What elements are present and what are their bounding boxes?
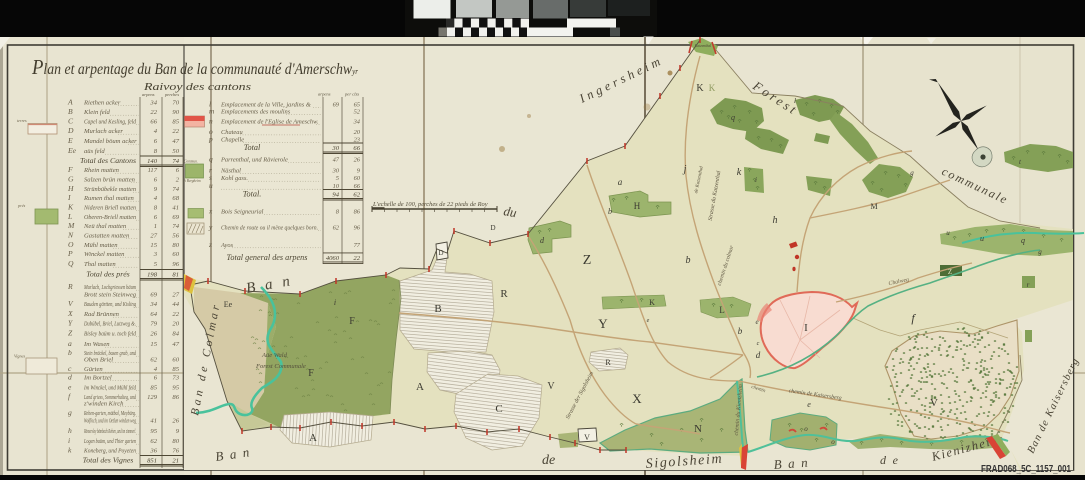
svg-text:Aüe Wald: Aüe Wald <box>261 352 288 359</box>
svg-text:60: 60 <box>354 175 361 182</box>
svg-text:b: b <box>68 348 72 357</box>
svg-text:77: 77 <box>354 242 361 249</box>
svg-text:y: y <box>208 223 213 232</box>
svg-text:22: 22 <box>150 109 157 116</box>
svg-text:Nästhal: Nästhal <box>220 168 241 175</box>
svg-text:z: z <box>208 240 212 249</box>
svg-text:80: 80 <box>172 242 179 249</box>
svg-text:851: 851 <box>147 458 157 465</box>
svg-text:terres: terres <box>17 118 27 123</box>
svg-text:3: 3 <box>153 251 158 258</box>
svg-text:41: 41 <box>172 205 179 212</box>
svg-text:K: K <box>649 298 655 307</box>
svg-text:Chemin de route ou il mène que: Chemin de route ou il mène quelques born… <box>221 225 318 232</box>
svg-text:B: B <box>434 303 441 315</box>
svg-text:5: 5 <box>336 175 339 182</box>
svg-text:Total des prés: Total des prés <box>86 270 129 279</box>
svg-text:C: C <box>495 403 502 415</box>
svg-text:62: 62 <box>150 357 157 364</box>
svg-text:Rad Brünnen: Rad Brünnen <box>83 311 120 318</box>
svg-text:86: 86 <box>354 209 361 216</box>
svg-text:Wolfloch, und im Oetlen winden: Wolfloch, und im Oetlen winden weg <box>84 418 136 425</box>
svg-text:60: 60 <box>172 251 179 258</box>
svg-text:FRAD068_5C_1157_001: FRAD068_5C_1157_001 <box>981 463 1071 475</box>
svg-text:Mühl matten: Mühl matten <box>83 242 118 249</box>
svg-text:Z: Z <box>948 268 952 276</box>
svg-text:A: A <box>67 98 73 107</box>
svg-text:62: 62 <box>333 225 340 232</box>
svg-text:G: G <box>68 175 74 184</box>
svg-text:Klein feld: Klein feld <box>83 109 111 116</box>
svg-text:22: 22 <box>172 128 179 135</box>
svg-text:Neü thal matten: Neü thal matten <box>83 223 127 230</box>
svg-text:R: R <box>500 288 508 300</box>
svg-text:26: 26 <box>150 331 157 338</box>
svg-text:V: V <box>930 397 938 409</box>
svg-text:r: r <box>1027 281 1030 289</box>
svg-text:74: 74 <box>172 223 179 230</box>
svg-text:g: g <box>910 169 914 177</box>
svg-text:Dubübel, Briel, Lutzweg &.: Dubübel, Briel, Lutzweg &. <box>83 321 136 328</box>
svg-text:arpens: arpens <box>318 92 331 97</box>
svg-text:D: D <box>490 224 495 232</box>
svg-text:perches: perches <box>164 92 179 97</box>
svg-text:Strünbübekle matten: Strünbübekle matten <box>84 186 137 193</box>
svg-text:74: 74 <box>172 158 179 165</box>
svg-text:85: 85 <box>172 366 179 373</box>
svg-text:O: O <box>68 240 74 249</box>
svg-text:21: 21 <box>172 458 179 465</box>
svg-text:Koneberg, und Poyeten: Koneberg, und Poyeten <box>83 448 136 455</box>
svg-text:R: R <box>67 282 73 291</box>
svg-text:94: 94 <box>332 192 339 199</box>
svg-text:i: i <box>334 298 336 307</box>
svg-text:44: 44 <box>172 301 179 308</box>
svg-text:34: 34 <box>353 118 361 125</box>
svg-text:arpens: arpens <box>142 92 155 97</box>
svg-text:u: u <box>209 181 213 190</box>
svg-text:Thal matten: Thal matten <box>84 261 116 268</box>
svg-text:62: 62 <box>150 438 157 445</box>
svg-text:à Bergheim: à Bergheim <box>184 179 201 183</box>
svg-text:129: 129 <box>147 394 158 401</box>
svg-text:b: b <box>686 255 691 266</box>
svg-text:64: 64 <box>150 311 157 318</box>
svg-text:prés: prés <box>17 203 26 208</box>
svg-text:e: e <box>807 400 811 409</box>
svg-text:34: 34 <box>149 100 157 107</box>
svg-text:69: 69 <box>150 292 157 299</box>
svg-text:Römersley bämbach Reben, und i: Römersley bämbach Reben, und im zimmerl. <box>84 428 137 435</box>
svg-text:Total des Cantons: Total des Cantons <box>80 156 136 165</box>
svg-text:Logen baüm, und Thier garten: Logen baüm, und Thier garten <box>83 438 136 445</box>
svg-text:1: 1 <box>154 223 157 230</box>
svg-text:I: I <box>67 193 71 202</box>
svg-text:Kohl gass.: Kohl gass. <box>220 175 248 182</box>
svg-text:95: 95 <box>150 428 157 435</box>
svg-text:B: B <box>68 107 73 116</box>
svg-text:N: N <box>67 231 74 240</box>
svg-text:x: x <box>208 207 213 216</box>
svg-text:140: 140 <box>147 158 158 165</box>
svg-text:20: 20 <box>172 321 179 328</box>
svg-text:Rhein matten: Rhein matten <box>83 167 120 174</box>
svg-text:Im Bortzel: Im Bortzel <box>83 375 112 382</box>
svg-text:26: 26 <box>354 157 361 164</box>
svg-text:q: q <box>209 155 213 164</box>
svg-text:Ee: Ee <box>224 300 233 309</box>
svg-text:Winckel matten: Winckel matten <box>84 251 125 258</box>
svg-text:K: K <box>696 83 704 94</box>
svg-text:Salzen brün matten: Salzen brün matten <box>84 177 136 184</box>
svg-text:b: b <box>608 207 612 216</box>
svg-text:p: p <box>208 135 213 144</box>
svg-text:Rumen thal matten: Rumen thal matten <box>83 195 135 202</box>
svg-text:D: D <box>67 126 74 135</box>
svg-text:85: 85 <box>150 385 157 392</box>
svg-text:i: i <box>68 436 70 445</box>
svg-text:Commun.: Commun. <box>184 160 198 164</box>
svg-text:P: P <box>67 249 73 258</box>
svg-text:36: 36 <box>149 448 157 455</box>
svg-text:74: 74 <box>172 186 179 193</box>
svg-text:g: g <box>1038 248 1042 256</box>
svg-text:30: 30 <box>331 145 339 152</box>
svg-text:c: c <box>757 341 760 347</box>
svg-text:Bauden gärtten, und Kisling: Bauden gärtten, und Kisling <box>84 301 136 308</box>
svg-text:Brott stein Steinweg: Brott stein Steinweg <box>84 292 137 299</box>
svg-text:aüs feld: aüs feld <box>84 148 105 155</box>
svg-text:Total: Total <box>244 143 261 152</box>
svg-text:Ban: Ban <box>773 455 808 472</box>
svg-text:90: 90 <box>172 109 179 116</box>
svg-text:Parrenthal, und Rävierole: Parrenthal, und Rävierole <box>220 157 288 164</box>
svg-text:K: K <box>709 83 716 93</box>
svg-text:V: V <box>584 433 590 442</box>
svg-text:X: X <box>67 309 73 318</box>
svg-text:Gastatten matten: Gastatten matten <box>84 233 130 240</box>
svg-text:h: h <box>68 426 72 435</box>
svg-text:Forest Communale: Forest Communale <box>255 363 306 370</box>
svg-text:I: I <box>804 322 808 334</box>
svg-text:86: 86 <box>172 394 179 401</box>
svg-text:Y: Y <box>598 316 608 331</box>
svg-text:30: 30 <box>332 168 340 175</box>
svg-text:h: h <box>773 215 778 226</box>
svg-text:62: 62 <box>353 192 360 199</box>
svg-text:52: 52 <box>354 109 361 116</box>
svg-text:73: 73 <box>172 375 179 382</box>
svg-text:u: u <box>980 234 984 243</box>
svg-text:Im Wasen: Im Wasen <box>83 341 110 348</box>
svg-text:H: H <box>634 201 641 211</box>
svg-text:65: 65 <box>354 102 360 109</box>
svg-text:per clzs: per clzs <box>344 92 359 97</box>
svg-text:Emplacements des moulins: Emplacements des moulins <box>220 109 291 116</box>
svg-text:69: 69 <box>333 102 340 109</box>
svg-text:Mandel böum acker: Mandel böum acker <box>83 138 137 145</box>
svg-text:M: M <box>67 221 75 230</box>
svg-text:22: 22 <box>172 311 179 318</box>
svg-text:M: M <box>870 202 877 211</box>
svg-text:A: A <box>416 381 424 393</box>
svg-text:Total.: Total. <box>243 190 262 199</box>
svg-text:q: q <box>731 113 735 122</box>
svg-text:a: a <box>618 177 623 187</box>
svg-text:20: 20 <box>354 129 361 136</box>
svg-text:Vignes: Vignes <box>14 354 25 359</box>
svg-text:41: 41 <box>150 418 157 425</box>
svg-text:96: 96 <box>172 261 179 268</box>
svg-text:L: L <box>67 212 72 221</box>
svg-text:g: g <box>68 408 72 417</box>
svg-text:d: d <box>68 373 72 382</box>
svg-text:q: q <box>1021 236 1025 245</box>
svg-text:Bisley baüm u. toch feld: Bisley baüm u. toch feld <box>84 331 137 338</box>
svg-text:b: b <box>738 326 743 336</box>
svg-text:Chateau: Chateau <box>221 129 243 136</box>
svg-text:F: F <box>67 165 73 174</box>
svg-text:80: 80 <box>172 438 179 445</box>
svg-text:u: u <box>946 229 950 237</box>
svg-text:27: 27 <box>172 292 179 299</box>
svg-text:34: 34 <box>149 301 157 308</box>
svg-text:79: 79 <box>150 321 157 328</box>
svg-text:Nideren Briell matten: Nideren Briell matten <box>83 205 137 212</box>
svg-text:L'echelle de 100, perches de 2: L'echelle de 100, perches de 22 pieds de… <box>372 201 488 208</box>
svg-text:e: e <box>647 318 650 324</box>
svg-text:m: m <box>209 107 215 116</box>
svg-text:o: o <box>831 438 835 446</box>
svg-text:95: 95 <box>172 385 179 392</box>
svg-text:i: i <box>755 176 757 184</box>
svg-text:76: 76 <box>172 448 179 455</box>
svg-text:66: 66 <box>150 119 157 126</box>
svg-text:R: R <box>605 358 611 367</box>
svg-text:26: 26 <box>172 418 179 425</box>
svg-text:117: 117 <box>148 167 158 174</box>
svg-text:50: 50 <box>172 148 179 155</box>
svg-text:Total des Vignes: Total des Vignes <box>83 456 134 465</box>
svg-text:N: N <box>694 423 702 435</box>
svg-text:Z: Z <box>583 253 592 268</box>
svg-text:z'winden Kirch: z'winden Kirch <box>83 401 124 408</box>
svg-text:70: 70 <box>172 100 179 107</box>
svg-text:56: 56 <box>172 233 179 240</box>
svg-text:Emplacement de l'Eglise de Ame: Emplacement de l'Eglise de Ameschw. <box>220 118 319 125</box>
svg-text:84: 84 <box>172 331 179 338</box>
svg-text:X: X <box>632 391 642 406</box>
svg-text:Riethen acker: Riethen acker <box>83 100 121 107</box>
svg-text:de: de <box>542 453 555 468</box>
svg-text:k: k <box>737 167 742 178</box>
svg-text:D: D <box>438 249 443 257</box>
svg-text:85: 85 <box>172 119 179 126</box>
svg-text:Murlach, Lochgriessen bäum: Murlach, Lochgriessen bäum <box>83 284 136 291</box>
svg-text:Emplacement de la Ville, jardi: Emplacement de la Ville, jardins & <box>220 102 311 109</box>
svg-text:47: 47 <box>333 157 340 164</box>
svg-text:Chapelle: Chapelle <box>221 137 244 144</box>
svg-text:81: 81 <box>172 272 179 279</box>
svg-text:15: 15 <box>150 341 157 348</box>
svg-text:27: 27 <box>150 233 157 240</box>
svg-text:198: 198 <box>147 272 158 279</box>
svg-text:68: 68 <box>172 195 179 202</box>
svg-text:Capel und Kesling, feld: Capel und Kesling, feld <box>84 119 137 126</box>
svg-text:V: V <box>547 381 555 392</box>
svg-text:L: L <box>719 305 725 315</box>
svg-text:Reben-garten, mätbal, Meybürg.: Reben-garten, mätbal, Meybürg. <box>83 410 136 417</box>
svg-text:e: e <box>755 318 758 326</box>
svg-text:Raivoy des cantons: Raivoy des cantons <box>143 81 251 93</box>
svg-text:n: n <box>209 116 213 125</box>
svg-text:Im Winckel, und Mühl feld: Im Winckel, und Mühl feld <box>83 385 136 392</box>
svg-text:96: 96 <box>354 225 361 232</box>
svg-text:d: d <box>756 350 761 360</box>
svg-text:15: 15 <box>150 242 157 249</box>
svg-text:69: 69 <box>172 214 179 221</box>
svg-text:Total general des arpens: Total general des arpens <box>227 253 308 262</box>
svg-text:4060: 4060 <box>326 255 340 262</box>
svg-text:47: 47 <box>172 138 179 145</box>
svg-text:F: F <box>349 316 355 327</box>
svg-text:K: K <box>67 203 74 212</box>
svg-text:Murlach acker: Murlach acker <box>83 128 123 135</box>
svg-text:Ayos: Ayos <box>220 242 234 249</box>
svg-text:Oben Briel: Oben Briel <box>84 357 113 364</box>
svg-text:Ee: Ee <box>67 146 77 155</box>
svg-text:60: 60 <box>172 357 179 364</box>
svg-text:o: o <box>804 425 808 433</box>
svg-text:a: a <box>68 339 72 348</box>
svg-text:Oberen-Briell matten: Oberen-Briell matten <box>84 214 137 221</box>
svg-text:66: 66 <box>353 145 360 152</box>
svg-text:H: H <box>67 184 74 193</box>
svg-text:E: E <box>67 136 73 145</box>
svg-text:22: 22 <box>353 255 360 262</box>
svg-text:F: F <box>308 368 314 379</box>
svg-text:47: 47 <box>172 341 179 348</box>
svg-text:Q: Q <box>68 259 74 268</box>
svg-text:Bois Seigneurial: Bois Seigneurial <box>221 209 264 216</box>
svg-text:A: A <box>309 432 317 444</box>
